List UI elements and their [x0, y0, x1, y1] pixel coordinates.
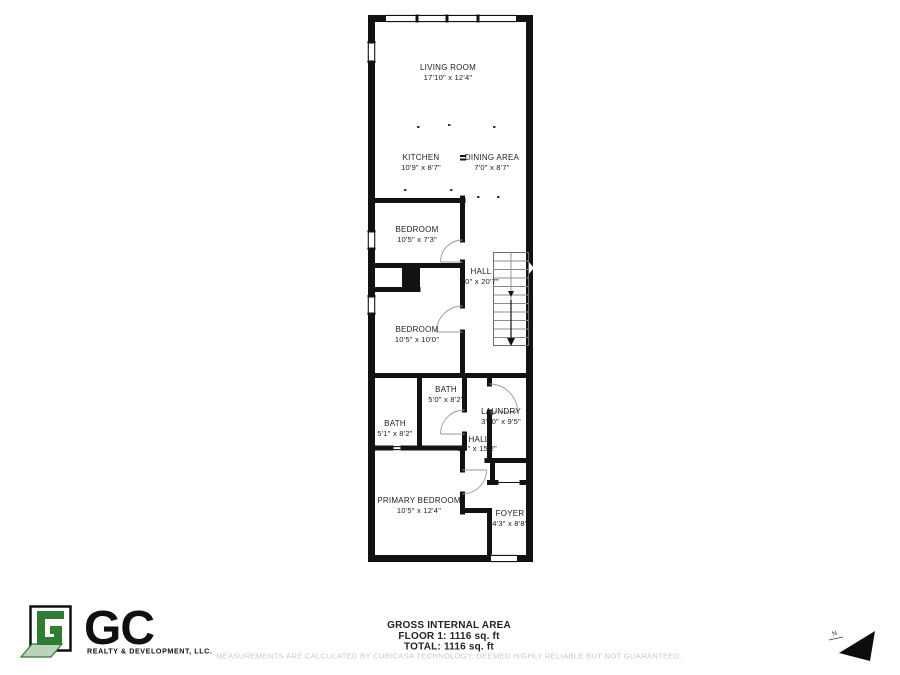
room-name: BEDROOM: [395, 325, 438, 334]
room-dims: 10'5" x 7'3": [397, 235, 437, 244]
compass-tick: [829, 637, 843, 640]
summary-disclaimer: MEASUREMENTS ARE CALCULATED BY CUBICASA …: [216, 652, 682, 661]
room-dims: 10'5" x 12'4": [397, 506, 441, 515]
door-arc-bath: [441, 410, 465, 434]
room-name: LIVING ROOM: [420, 63, 476, 72]
room-label-bath-center: BATH 5'0" x 8'2": [428, 385, 464, 404]
window-left-1: [368, 41, 376, 63]
room-label-laundry: LAUNDRY 3'10" x 9'5": [481, 407, 521, 426]
room-dims: 7'0" x 20'7": [459, 277, 499, 286]
room-label-bedroom-1: BEDROOM 10'5" x 7'3": [395, 225, 438, 244]
room-label-dining-area: DINING AREA 7'0" x 8'7": [465, 153, 520, 172]
north-arrow-icon: [839, 631, 875, 661]
room-label-foyer: FOYER 4'3" x 8'8": [492, 509, 528, 528]
room-name: HALL: [470, 267, 491, 276]
summary-floor-area: FLOOR 1: 1116 sq. ft: [398, 631, 500, 642]
room-dims: 10'5" x 10'0": [395, 335, 439, 344]
logo: GC REALTY & DEVELOPMENT, LLC.: [21, 602, 212, 657]
room-dims: 3'0" x 15'2": [457, 444, 497, 453]
room-name: BATH: [384, 419, 406, 428]
room-name: HALL: [468, 435, 489, 444]
room-label-bath-left: BATH 5'1" x 8'2": [377, 419, 413, 438]
door-arc-primary-bedroom: [463, 470, 487, 494]
room-name: DINING AREA: [465, 153, 520, 162]
room-label-primary-bedroom: PRIMARY BEDROOM 10'5" x 12'4": [377, 496, 461, 515]
room-label-kitchen: KITCHEN 10'9" x 8'7": [401, 153, 441, 172]
room-dims: 7'0" x 8'7": [474, 163, 510, 172]
logo-company: REALTY & DEVELOPMENT, LLC.: [87, 647, 212, 656]
room-name: LAUNDRY: [481, 407, 521, 416]
summary-title: GROSS INTERNAL AREA: [387, 620, 511, 631]
floorplan-canvas: LIVING ROOM 17'10" x 12'4" KITCHEN 10'9"…: [0, 0, 900, 675]
window-left-3: [368, 295, 376, 315]
room-dims: 3'10" x 9'5": [481, 417, 521, 426]
door-arc-bedroom1: [441, 240, 463, 262]
room-name: BEDROOM: [395, 225, 438, 234]
room-dims: 4'3" x 8'8": [492, 519, 528, 528]
room-label-bedroom-2: BEDROOM 10'5" x 10'0": [395, 325, 439, 344]
stairs: [494, 253, 529, 347]
floorplan-page: LIVING ROOM 17'10" x 12'4" KITCHEN 10'9"…: [0, 0, 900, 675]
room-name: KITCHEN: [403, 153, 440, 162]
room-name: FOYER: [496, 509, 525, 518]
logo-mark: [21, 607, 71, 658]
room-dims: 10'9" x 8'7": [401, 163, 441, 172]
closet-block: [402, 263, 420, 290]
room-dims: 5'0" x 8'2": [428, 395, 464, 404]
logo-g-glyph: [41, 615, 64, 641]
room-label-living-room: LIVING ROOM 17'10" x 12'4": [420, 63, 476, 82]
summary: GROSS INTERNAL AREA FLOOR 1: 1116 sq. ft…: [216, 620, 682, 661]
floorplan: LIVING ROOM 17'10" x 12'4" KITCHEN 10'9"…: [368, 15, 535, 563]
door-arc-bedroom2: [437, 306, 463, 332]
compass-n-label: N: [831, 630, 838, 638]
room-name: BATH: [435, 385, 457, 394]
entry-door: [491, 555, 517, 563]
room-name: PRIMARY BEDROOM: [377, 496, 461, 505]
logo-3d-base: [21, 644, 62, 657]
compass: N: [829, 630, 875, 661]
window-left-2: [368, 230, 376, 250]
window-top: [386, 15, 516, 23]
room-dims: 17'10" x 12'4": [424, 73, 473, 82]
room-dims: 5'1" x 8'2": [377, 429, 413, 438]
